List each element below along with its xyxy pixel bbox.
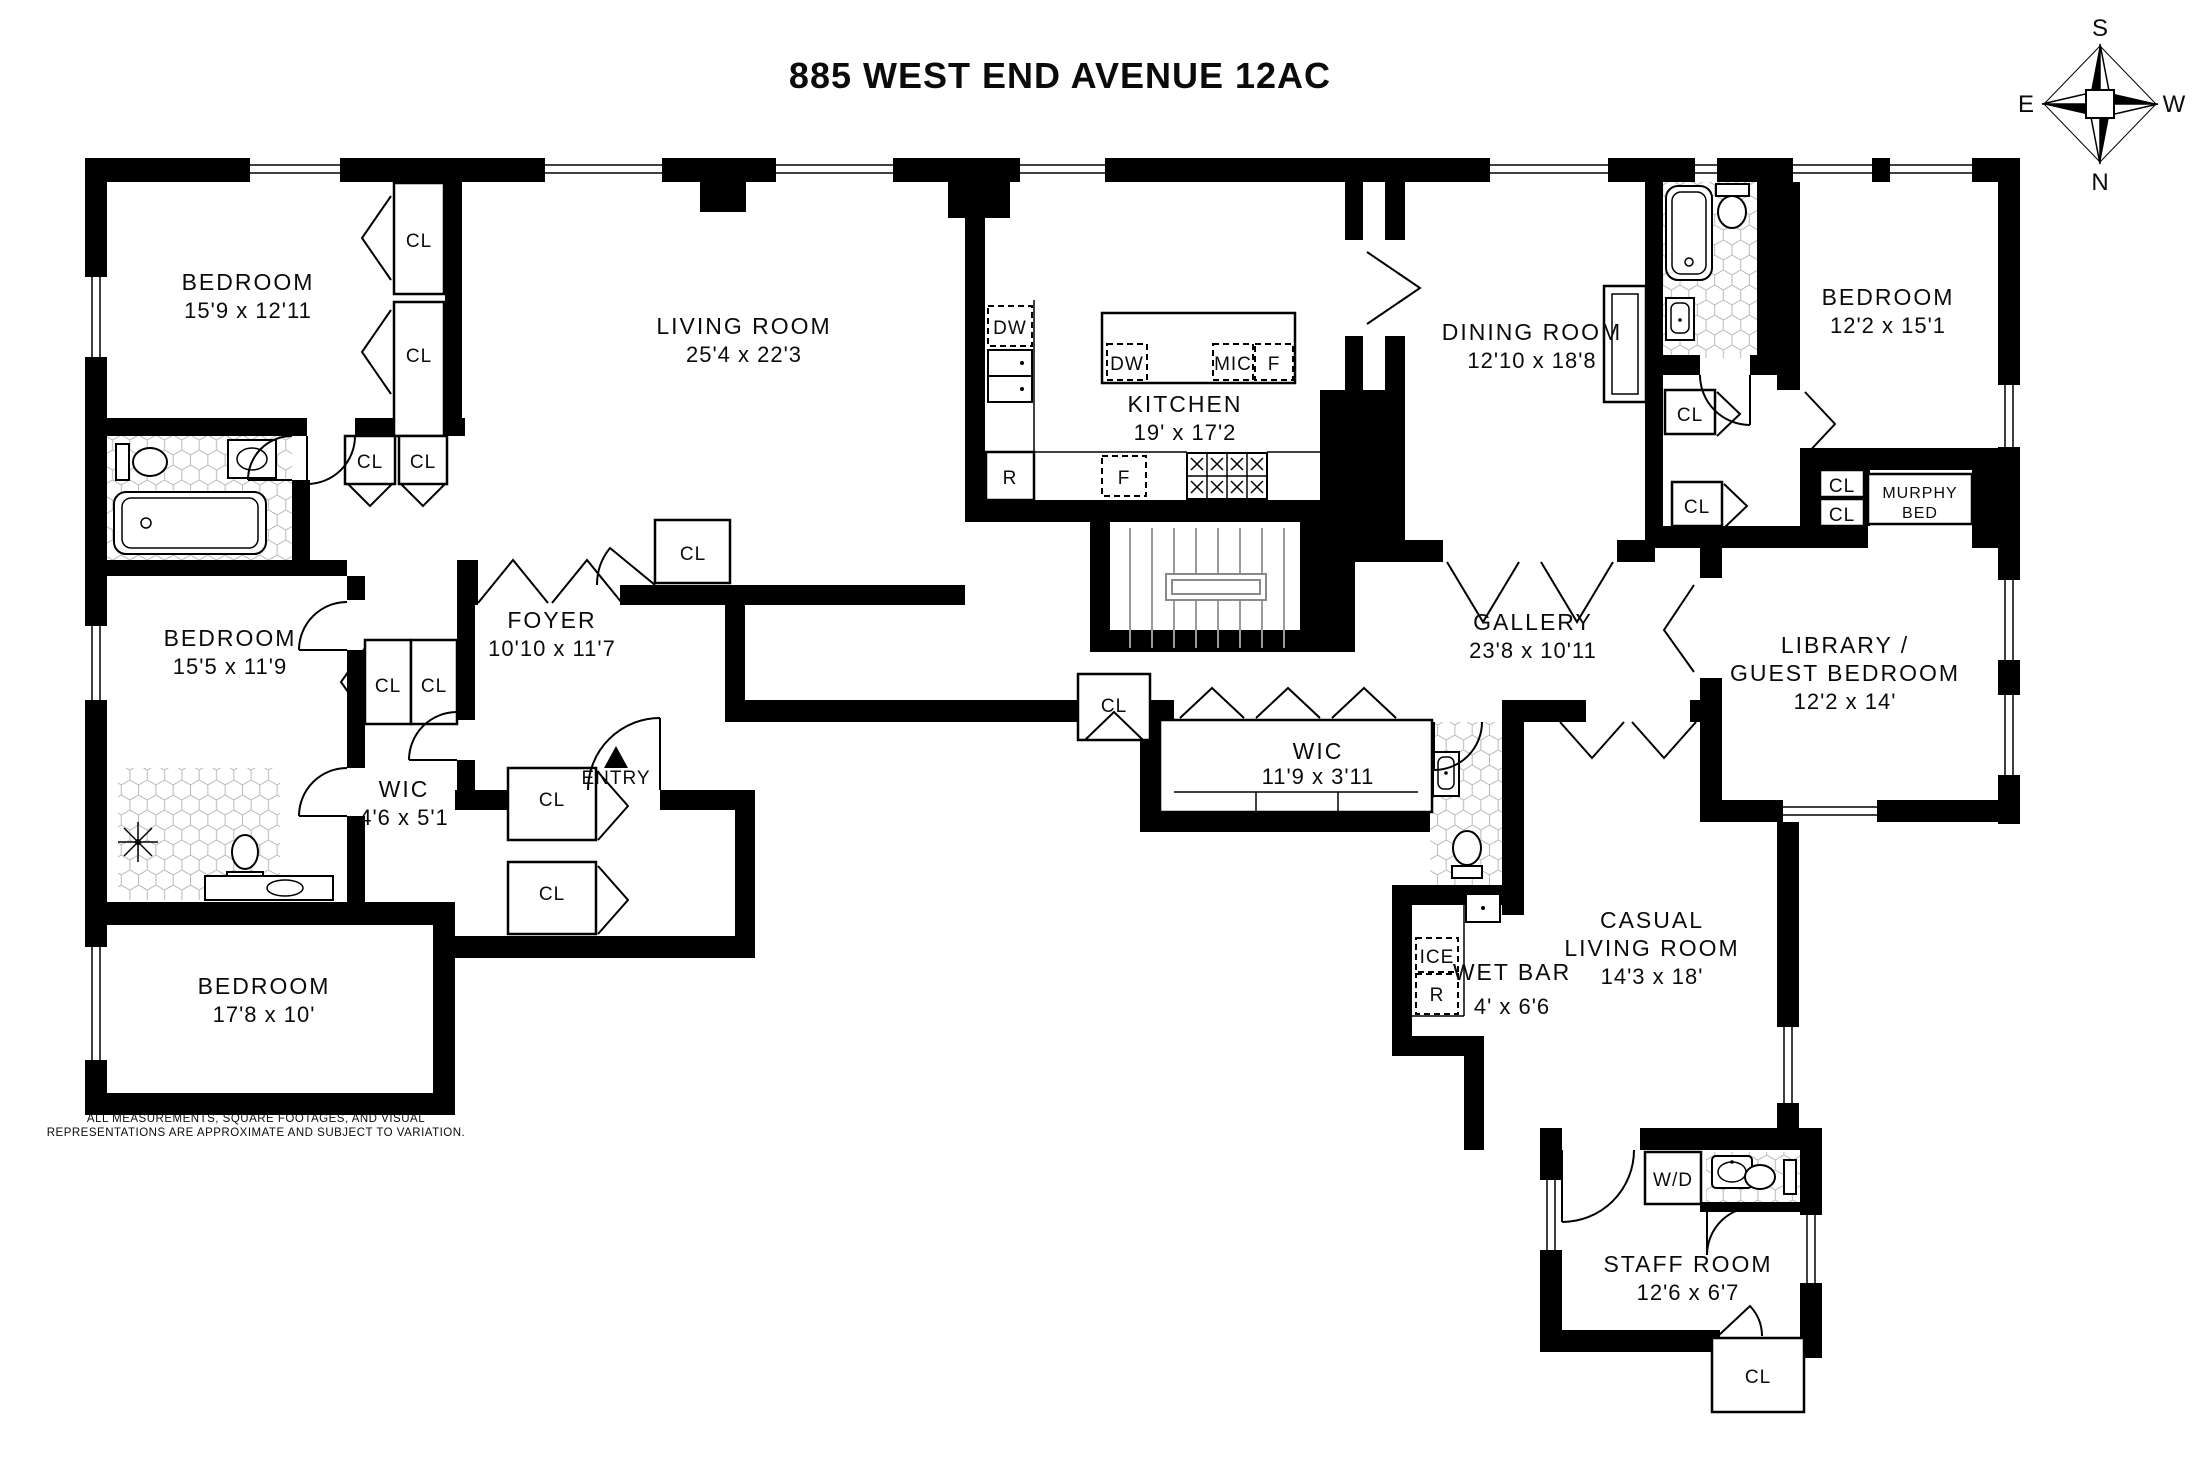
- doors: [248, 196, 1835, 1336]
- window-library-south: [1783, 800, 1877, 822]
- room-label-bedroom-tl: BEDROOM: [182, 269, 315, 295]
- closet-label: CL: [1829, 505, 1855, 526]
- room-label-bedroom-tr: BEDROOM: [1822, 284, 1955, 310]
- closet-label: CL: [539, 790, 565, 811]
- sink-icon: [205, 876, 333, 900]
- closet-label: CL: [375, 676, 401, 697]
- room-label-library-2: GUEST BEDROOM: [1730, 660, 1960, 686]
- room-dims-foyer: 10'10 x 11'7: [488, 636, 616, 661]
- disclaimer: ALL MEASUREMENTS, SQUARE FOOTAGES, AND V…: [47, 1113, 466, 1139]
- entry-label: ENTRY: [581, 768, 650, 789]
- door-gap-bedroom-tr: [1777, 390, 1800, 448]
- floor-plan-drawing: S E W N 885 WEST END AVENUE 12AC BEDROOM…: [0, 0, 2200, 1466]
- closet-label: CL: [357, 452, 383, 473]
- closet-label: CL: [539, 884, 565, 905]
- room-label-bedroom-ml: BEDROOM: [164, 625, 297, 651]
- room-label-wic-long: WIC: [1293, 738, 1344, 764]
- page-title: 885 WEST END AVENUE 12AC: [789, 55, 1331, 96]
- room-dims-wic-long: 11'9 x 3'11: [1262, 764, 1375, 789]
- murphy-bed-label-2: BED: [1902, 505, 1938, 522]
- window-right-wall: [1998, 385, 2020, 775]
- closet-label: CL: [421, 676, 447, 697]
- room-label-casual-2: LIVING ROOM: [1564, 935, 1739, 961]
- dishwasher-label: DW: [993, 318, 1027, 339]
- room-dims-bedroom-bl: 17'8 x 10': [213, 1002, 316, 1027]
- microwave-label: MIC: [1214, 354, 1252, 375]
- disclaimer-line-2: REPRESENTATIONS ARE APPROXIMATE AND SUBJ…: [47, 1127, 466, 1139]
- closet-label: CL: [406, 346, 432, 367]
- floor-plan-page: S E W N 885 WEST END AVENUE 12AC BEDROOM…: [0, 0, 2200, 1466]
- room-dims-dining-room: 12'10 x 18'8: [1467, 348, 1596, 373]
- drawer-icon: [988, 350, 1032, 376]
- window-staff-east: [1800, 1215, 1822, 1283]
- fridge-label: F: [1268, 354, 1281, 375]
- compass-west-label: W: [2163, 91, 2186, 118]
- room-dims-gallery: 23'8 x 10'11: [1469, 638, 1597, 663]
- closet-label: CL: [1829, 476, 1855, 497]
- room-dims-staff-room: 12'6 x 6'7: [1637, 1280, 1740, 1305]
- room-label-casual-1: CASUAL: [1600, 907, 1704, 933]
- room-dims-wet-bar: 4' x 6'6: [1474, 994, 1550, 1019]
- sink-icon: [1666, 298, 1694, 340]
- closet-box: [394, 302, 444, 436]
- room-dims-bedroom-ml: 15'5 x 11'9: [173, 654, 287, 679]
- ice-label: ICE: [1420, 947, 1455, 968]
- room-label-wet-bar: WET BAR: [1453, 959, 1571, 985]
- entry-arrow-icon: [604, 746, 628, 768]
- closet-label: CL: [406, 231, 432, 252]
- shower-icon: [118, 822, 158, 862]
- room-label-foyer: FOYER: [507, 607, 596, 633]
- room-dims-bedroom-tl: 15'9 x 12'11: [184, 298, 312, 323]
- closet-label: CL: [1101, 696, 1127, 717]
- room-label-gallery: GALLERY: [1473, 609, 1593, 635]
- room-label-library-1: LIBRARY /: [1781, 632, 1909, 658]
- compass-east-label: E: [2018, 91, 2034, 118]
- range-label: R: [1430, 985, 1445, 1006]
- room-dims-wic-small: 4'6 x 5'1: [359, 805, 449, 830]
- room-label-dining-room: DINING ROOM: [1442, 319, 1622, 345]
- bathtub-icon: [1666, 186, 1712, 280]
- room-dims-kitchen: 19' x 17'2: [1134, 420, 1237, 445]
- compass-south-label: S: [2092, 15, 2108, 42]
- room-label-wic-small: WIC: [379, 776, 430, 802]
- room-dims-library: 12'2 x 14': [1794, 689, 1897, 714]
- closet-label: CL: [1684, 497, 1710, 518]
- room-label-bedroom-bl: BEDROOM: [198, 973, 331, 999]
- room-dims-bedroom-tr: 12'2 x 15'1: [1830, 313, 1946, 338]
- sink-icon: [1433, 752, 1459, 796]
- closet-label: CL: [1745, 1367, 1771, 1388]
- room-dims-casual: 14'3 x 18': [1601, 964, 1704, 989]
- toilet-icon: [1452, 831, 1482, 878]
- drawer-icon: [988, 376, 1032, 402]
- closet-label: CL: [410, 452, 436, 473]
- closet-label: CL: [1677, 405, 1703, 426]
- disclaimer-line-1: ALL MEASUREMENTS, SQUARE FOOTAGES, AND V…: [87, 1113, 425, 1125]
- window-staff-west: [1540, 1180, 1562, 1250]
- murphy-bed-label-1: MURPHY: [1882, 485, 1957, 502]
- toilet-icon: [116, 444, 167, 480]
- range-icon: [1187, 453, 1267, 499]
- fridge-label: F: [1118, 468, 1131, 489]
- door-gap-library: [1700, 578, 1722, 678]
- washer-dryer-label: W/D: [1653, 1170, 1693, 1191]
- bathtub-icon: [114, 492, 266, 554]
- window-casual-east: [1777, 1027, 1799, 1103]
- room-label-staff-room: STAFF ROOM: [1603, 1251, 1772, 1277]
- toilet-icon: [1716, 184, 1749, 228]
- compass-icon: S E W N: [2018, 15, 2186, 196]
- room-label-living-room: LIVING ROOM: [656, 313, 831, 339]
- room-label-kitchen: KITCHEN: [1128, 391, 1243, 417]
- compass-north-label: N: [2091, 169, 2108, 196]
- closet-label: CL: [680, 544, 706, 565]
- dishwasher-label: DW: [1110, 354, 1144, 375]
- range-label: R: [1003, 468, 1018, 489]
- sink-icon: [228, 440, 276, 478]
- room-dims-living-room: 25'4 x 22'3: [686, 342, 802, 367]
